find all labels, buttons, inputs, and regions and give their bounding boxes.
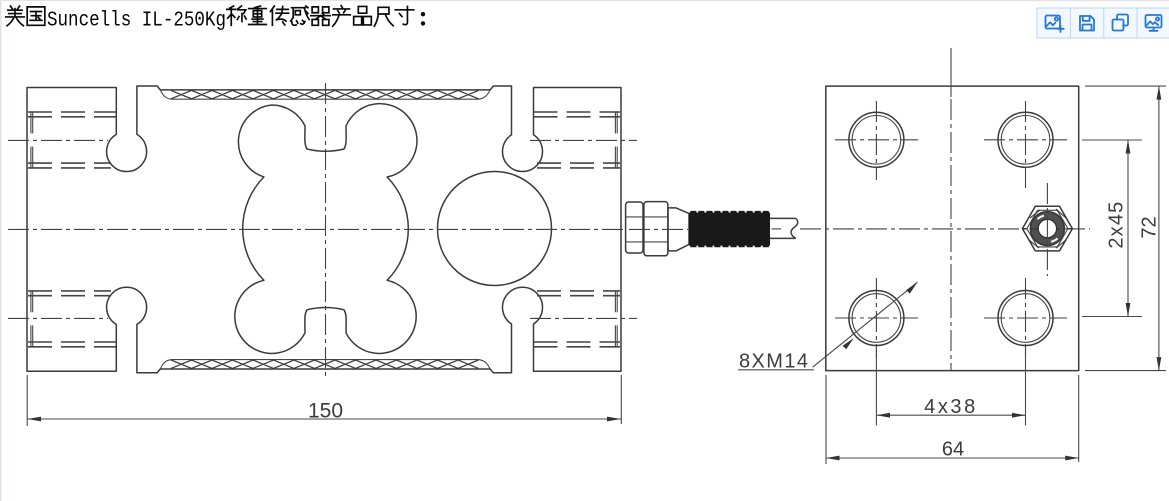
svg-text:64: 64 — [942, 438, 964, 460]
svg-text:8XM14: 8XM14 — [739, 350, 809, 372]
svg-text:Suncells IL-250Kg: Suncells IL-250Kg — [47, 9, 226, 33]
svg-text:150: 150 — [308, 399, 343, 422]
svg-text:4x38: 4x38 — [924, 396, 978, 418]
svg-text:2x45: 2x45 — [1106, 201, 1128, 249]
svg-text:72: 72 — [1139, 216, 1161, 238]
